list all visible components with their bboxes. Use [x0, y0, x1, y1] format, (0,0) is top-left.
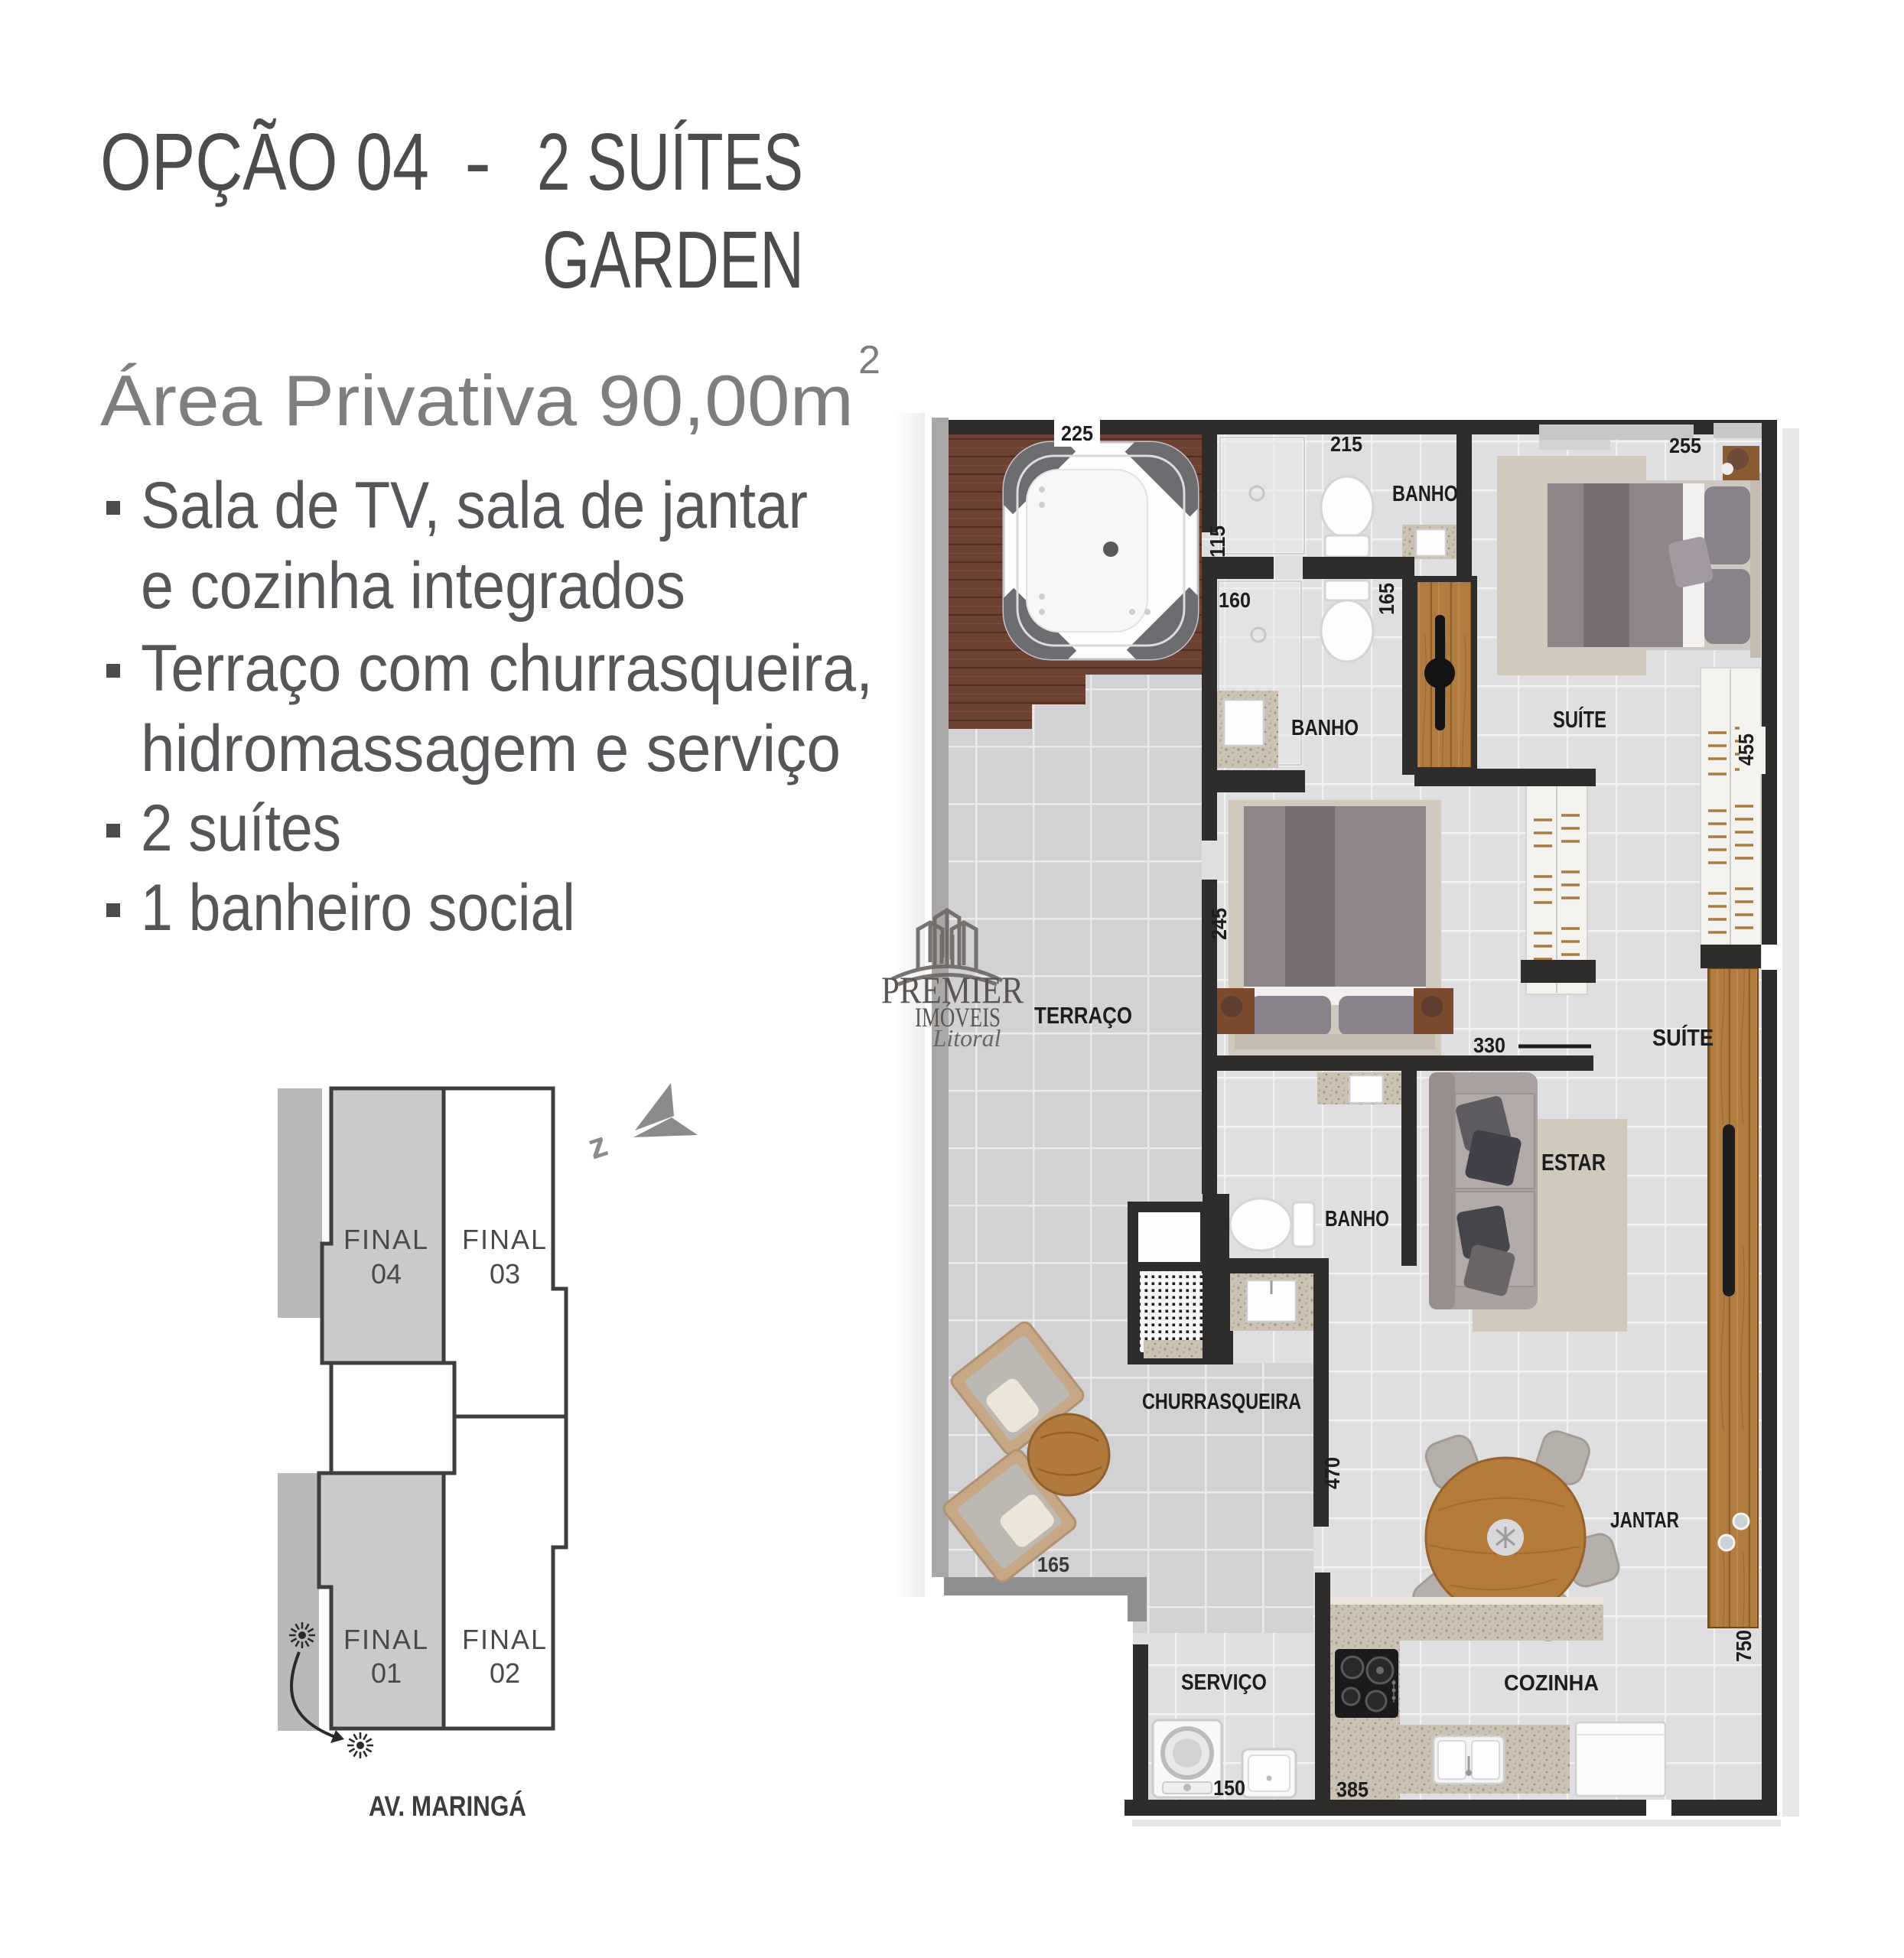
svg-text:FINAL: FINAL	[462, 1624, 548, 1655]
svg-text:COZINHA: COZINHA	[1504, 1671, 1599, 1696]
svg-text:385: 385	[1336, 1777, 1369, 1801]
svg-text:150: 150	[1213, 1776, 1245, 1800]
svg-text:AV. MARINGÁ: AV. MARINGÁ	[369, 1790, 526, 1822]
svg-text:SUÍTE: SUÍTE	[1652, 1024, 1714, 1051]
svg-text:BANHO: BANHO	[1392, 482, 1458, 506]
svg-text:SERVIÇO: SERVIÇO	[1181, 1670, 1267, 1695]
svg-text:02: 02	[490, 1657, 520, 1689]
svg-text:750: 750	[1732, 1630, 1756, 1662]
svg-text:225: 225	[1061, 421, 1093, 445]
svg-text:CHURRASQUEIRA: CHURRASQUEIRA	[1142, 1390, 1301, 1414]
svg-text:165: 165	[1375, 583, 1398, 615]
svg-text:165: 165	[1037, 1553, 1069, 1576]
svg-text:hidromassagem e serviço: hidromassagem e serviço	[141, 712, 841, 785]
svg-text:FINAL: FINAL	[343, 1224, 429, 1255]
svg-text:BANHO: BANHO	[1291, 716, 1359, 740]
svg-text:Litoral: Litoral	[932, 1024, 1001, 1052]
svg-text:330: 330	[1473, 1033, 1505, 1057]
svg-text:255: 255	[1669, 434, 1701, 457]
svg-text:Terraço com churrasqueira,: Terraço com churrasqueira,	[141, 632, 873, 705]
svg-text:Área Privativa 90,00m: Área Privativa 90,00m	[100, 360, 854, 441]
svg-text:GARDEN: GARDEN	[542, 215, 804, 305]
svg-text:Sala de TV, sala de jantar: Sala de TV, sala de jantar	[141, 469, 808, 542]
svg-text:455: 455	[1734, 733, 1758, 766]
svg-text:FINAL: FINAL	[462, 1224, 548, 1255]
svg-text:115: 115	[1206, 525, 1229, 558]
svg-text:2 SUÍTES: 2 SUÍTES	[537, 117, 803, 207]
svg-text:OPÇÃO 04: OPÇÃO 04	[100, 117, 429, 207]
svg-text:215: 215	[1330, 432, 1362, 456]
svg-text:JANTAR: JANTAR	[1610, 1508, 1679, 1533]
svg-text:245: 245	[1207, 908, 1231, 940]
svg-text:e cozinha integrados: e cozinha integrados	[141, 549, 685, 623]
svg-text:2: 2	[858, 338, 880, 382]
svg-text:160: 160	[1219, 588, 1251, 612]
svg-text:1 banheiro social: 1 banheiro social	[141, 871, 575, 945]
svg-text:03: 03	[490, 1258, 520, 1290]
svg-text:470: 470	[1320, 1457, 1344, 1489]
svg-text:TERRAÇO: TERRAÇO	[1034, 1002, 1132, 1029]
svg-text:ESTAR: ESTAR	[1541, 1149, 1606, 1176]
svg-text:SUÍTE: SUÍTE	[1553, 706, 1606, 733]
svg-text:BANHO: BANHO	[1325, 1207, 1389, 1231]
svg-text:FINAL: FINAL	[343, 1624, 429, 1655]
svg-text:2 suítes: 2 suítes	[141, 792, 341, 865]
svg-text:04: 04	[371, 1258, 402, 1290]
svg-text:-: -	[464, 117, 491, 207]
svg-text:01: 01	[371, 1657, 402, 1689]
